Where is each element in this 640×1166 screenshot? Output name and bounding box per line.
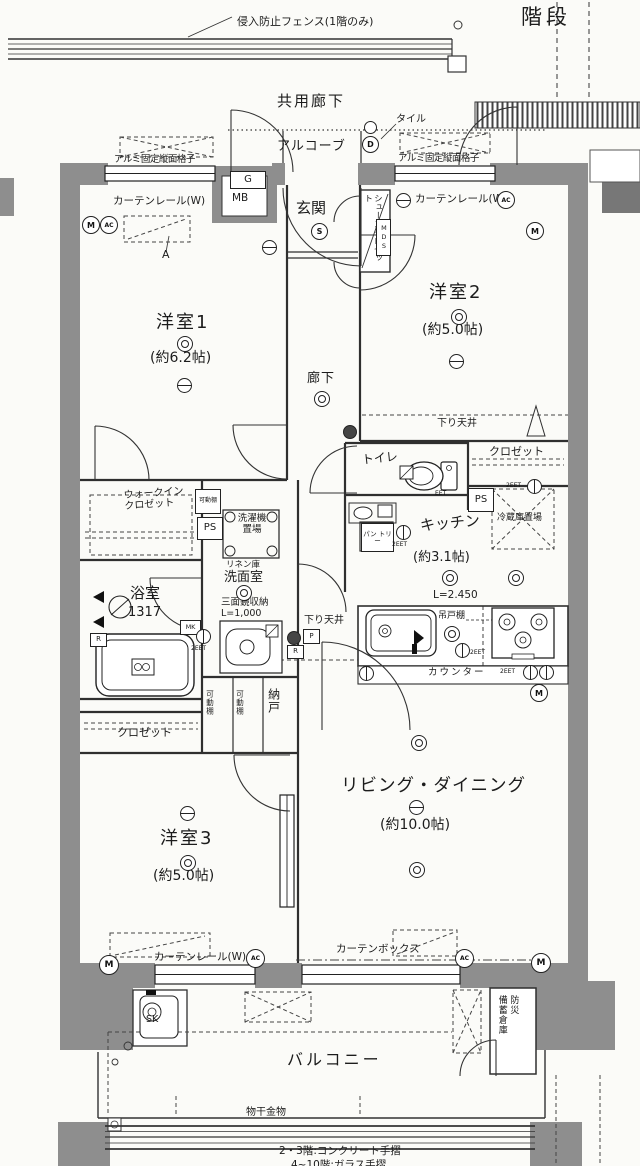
meter-symbol-br: M [531, 953, 551, 973]
ceiling-light-icon [444, 626, 460, 642]
ps-box-2: PS [197, 517, 223, 540]
washroom-label: 洗面室 [224, 571, 263, 586]
meter-symbol-counter: M [530, 684, 548, 702]
lowered-ceiling-1-label: 下り天井 [437, 418, 477, 429]
washbasin-icon [220, 621, 282, 673]
ceiling-light-icon [411, 735, 427, 751]
living-dining-size: (約10.0帖) [380, 818, 450, 834]
ac-symbol-room3: AC [246, 949, 265, 968]
bedroom2-size: (約5.0帖) [422, 323, 483, 339]
hanging-cupboard-label: 吊戸棚 [438, 611, 465, 621]
ceiling-light-icon [442, 570, 458, 586]
doorbell-symbol: D [362, 136, 379, 153]
ceiling-light-icon [451, 309, 467, 325]
outlet-tag: 2EET [392, 541, 407, 548]
outlet-icon [196, 629, 211, 644]
outlet-tag: 2EET [506, 482, 521, 489]
laundry-hardware-label: 物干金物 [246, 1107, 286, 1118]
disaster-storage-label: 防災 備蓄倉庫 [495, 995, 518, 1069]
grille-left-label: アルミ固定縦面格子 [114, 155, 195, 166]
common-corridor-label: 共用廊下 [277, 93, 345, 110]
walk-in-closet-label: ウォークイン クロゼット [123, 486, 184, 513]
wall-lamp-icon [177, 378, 192, 393]
outlet-icon [527, 479, 542, 494]
ceiling-light-icon [409, 862, 425, 878]
entrance-step-symbol: S [311, 223, 328, 240]
stairs-label: 階段 [521, 6, 571, 30]
handrail-note-1: 2・3階:コンクリート手摺 [279, 1146, 401, 1158]
junction-dot-icon [343, 425, 357, 439]
small-circle-symbol [364, 121, 377, 134]
curtain-rail-bl-label: カーテンレール(W) [154, 952, 246, 964]
bedroom3-name: 洋室3 [160, 829, 213, 850]
outlet-tag: 2EET [191, 645, 206, 652]
handrail-note-2: 4~10階:ガラス手摺 [291, 1160, 386, 1166]
alcove-label: アルコーブ [277, 140, 346, 155]
wall-lamp-icon [409, 800, 424, 815]
outlet-icon [396, 525, 411, 540]
p-box-hall: P [303, 629, 320, 644]
grille-right-label: アルミ固定縦面格子 [398, 154, 479, 165]
kitchen-size: (約3.1帖) [413, 551, 470, 566]
wall-lamp-icon [396, 193, 411, 208]
outlet-icon [359, 666, 374, 681]
corridor-label: 廊下 [307, 372, 335, 387]
stair-landing-box [590, 150, 640, 182]
storage-room-label: 納戸 [266, 688, 280, 738]
slop-sink-label: SK [146, 1015, 158, 1026]
floorplan-drawing [0, 0, 640, 1166]
hand-basin-icon [354, 505, 392, 519]
bath-size: 1317 [128, 606, 161, 621]
fence-label: 侵入防止フェンス(1階のみ) [237, 16, 373, 29]
ac-symbol-living: AC [455, 949, 474, 968]
curtain-rail-tl-label: カーテンレール(W) [113, 196, 205, 208]
gas-meter-box: G [230, 171, 266, 189]
lowered-ceiling-2-label: 下り天井 [304, 615, 344, 626]
bedroom2-name: 洋室2 [429, 283, 482, 304]
stove-icon [492, 608, 554, 659]
pantry-box: パン トリー [361, 523, 394, 552]
living-dining-name: リビング・ダイニング [341, 777, 526, 797]
outlet-icon [455, 643, 470, 658]
entrance-label: 玄関 [296, 200, 326, 217]
curtain-box-label: カーテンボックス [336, 944, 420, 956]
wall-lamp-icon [449, 354, 464, 369]
outlet-tag: EET [435, 490, 446, 497]
meter-box-label: MB [232, 193, 248, 205]
balcony-label: バルコニー [287, 1051, 382, 1069]
r-box-hall: R [287, 645, 304, 659]
ceiling-light-icon [508, 570, 524, 586]
marker-a-label: A [162, 249, 170, 262]
wall-lamp-icon [262, 240, 277, 255]
counter-label: カウンター [428, 668, 486, 679]
mds-box: MDS [376, 219, 391, 256]
toilet-icon [400, 462, 457, 490]
tile-label: タイル [396, 114, 426, 125]
ceiling-light-icon [314, 391, 330, 407]
movable-shelf-1-box: 可動棚 [195, 489, 221, 514]
washer-space-label: 洗濯機 置場 [232, 514, 272, 536]
closet-bedroom2-label: クロゼット [489, 446, 544, 459]
ceiling-light-icon [177, 336, 193, 352]
counter-length-label: L=2.450 [433, 590, 478, 602]
ps-box-1: PS [468, 488, 494, 512]
outlet-icon [523, 665, 538, 680]
bath-name: 浴室 [130, 585, 160, 602]
outlet-icon [539, 665, 554, 680]
curtain-rail-tr-label: カーテンレール(W) [415, 194, 507, 206]
ceiling-light-icon [180, 855, 196, 871]
closet-bedroom3-label: クロゼット [117, 727, 172, 740]
r-box-bath: R [90, 633, 107, 647]
ceiling-light-icon [236, 585, 252, 601]
floorplan-canvas: 侵入防止フェンス(1階のみ) 階段 共用廊下 タイル アルコーブ アルミ固定縦面… [0, 0, 640, 1166]
mirror-cabinet-label: 三面鏡収納 L=1,000 [221, 598, 269, 620]
bedroom1-name: 洋室1 [156, 313, 209, 334]
ac-symbol-room2: AC [497, 191, 515, 209]
bedroom3-size: (約5.0帖) [153, 869, 214, 885]
junction-dot-icon [287, 631, 301, 645]
meter-symbol-tl: M [82, 216, 100, 234]
bedroom1-size: (約6.2帖) [150, 351, 211, 367]
wall-lamp-icon [180, 806, 195, 821]
outlet-tag: 2EET [470, 649, 485, 656]
meter-symbol-tr: M [526, 222, 544, 240]
fridge-space-label: 冷蔵庫置場 [497, 513, 542, 523]
movable-shelf-2-label: 可動棚 [205, 690, 214, 744]
meter-symbol-bl: M [99, 955, 119, 975]
ac-symbol-room1: AC [100, 216, 118, 234]
outlet-tag: 2EET [500, 668, 515, 675]
movable-shelf-3-label: 可動棚 [235, 690, 244, 744]
